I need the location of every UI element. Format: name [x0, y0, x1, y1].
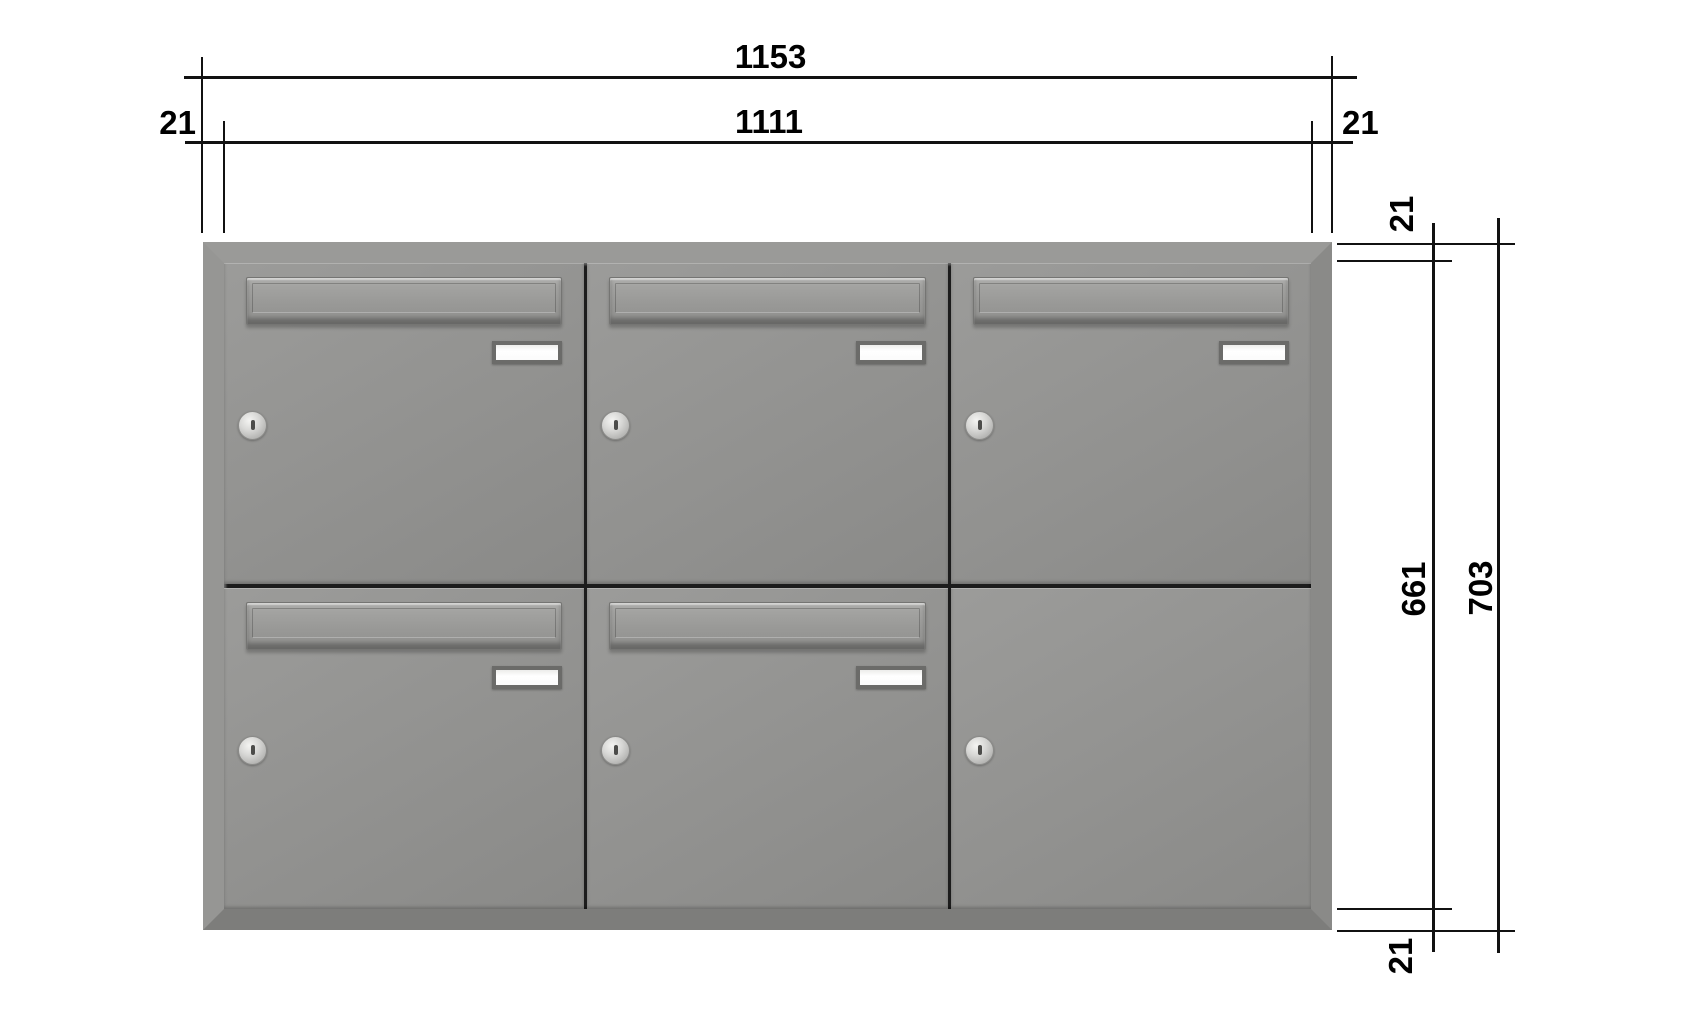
dim-label-outer-width: 1153 [184, 40, 1357, 73]
letter-flap [609, 277, 925, 325]
mailbox-door-box-2 [587, 263, 947, 584]
letter-flap [246, 277, 562, 325]
letter-slot [979, 283, 1283, 313]
lock-cylinder [238, 411, 267, 440]
technical-drawing: 1153 1111 21 21 21 661 703 21 [0, 0, 1694, 1017]
keyhole-icon [614, 420, 618, 430]
keyhole-icon [978, 420, 982, 430]
ext-line-cabinet-bottom [1337, 930, 1515, 932]
dim-label-top-margin: 21 [1384, 169, 1418, 259]
mailbox-door-box-4 [224, 588, 584, 909]
name-plate [856, 666, 926, 689]
dim-line-inner-width [185, 141, 1353, 144]
mailbox-door-box-5 [587, 588, 947, 909]
ext-line-cabinet-left [201, 57, 203, 233]
dim-line-inner-height [1432, 223, 1435, 952]
dim-line-outer-width [184, 76, 1357, 79]
lock-cylinder [238, 736, 267, 765]
dim-label-inner-width: 1111 [185, 105, 1353, 138]
mailbox-door-box-1 [224, 263, 584, 584]
ext-line-cabinet-top [1337, 243, 1515, 245]
lock-cylinder [601, 411, 630, 440]
letter-slot [252, 283, 556, 313]
keyhole-icon [614, 745, 618, 755]
letter-flap [246, 602, 562, 650]
ext-line-doorarea-top [1337, 260, 1452, 262]
name-plate [1219, 341, 1289, 364]
dim-label-right-margin: 21 [1342, 106, 1422, 139]
mailbox-door-box-6 [951, 588, 1311, 909]
lock-cylinder [965, 411, 994, 440]
door-grid [224, 263, 1311, 909]
name-plate [492, 341, 562, 364]
ext-line-doorarea-bottom [1337, 908, 1452, 910]
name-plate [856, 341, 926, 364]
keyhole-icon [251, 420, 255, 430]
keyhole-icon [251, 745, 255, 755]
letter-slot [252, 608, 556, 638]
keyhole-icon [978, 745, 982, 755]
dim-label-outer-height: 703 [1463, 543, 1497, 633]
dim-label-bottom-margin: 21 [1383, 911, 1417, 1001]
mailbox-door-box-3 [951, 263, 1311, 584]
mailbox-cabinet-frame [203, 242, 1332, 930]
ext-line-cabinet-right [1331, 56, 1333, 233]
dim-label-left-margin: 21 [116, 106, 196, 139]
lock-cylinder [965, 736, 994, 765]
dim-label-inner-height: 661 [1396, 544, 1430, 634]
letter-flap [973, 277, 1289, 325]
lock-cylinder [601, 736, 630, 765]
letter-flap [609, 602, 925, 650]
name-plate [492, 666, 562, 689]
letter-slot [615, 608, 919, 638]
letter-slot [615, 283, 919, 313]
